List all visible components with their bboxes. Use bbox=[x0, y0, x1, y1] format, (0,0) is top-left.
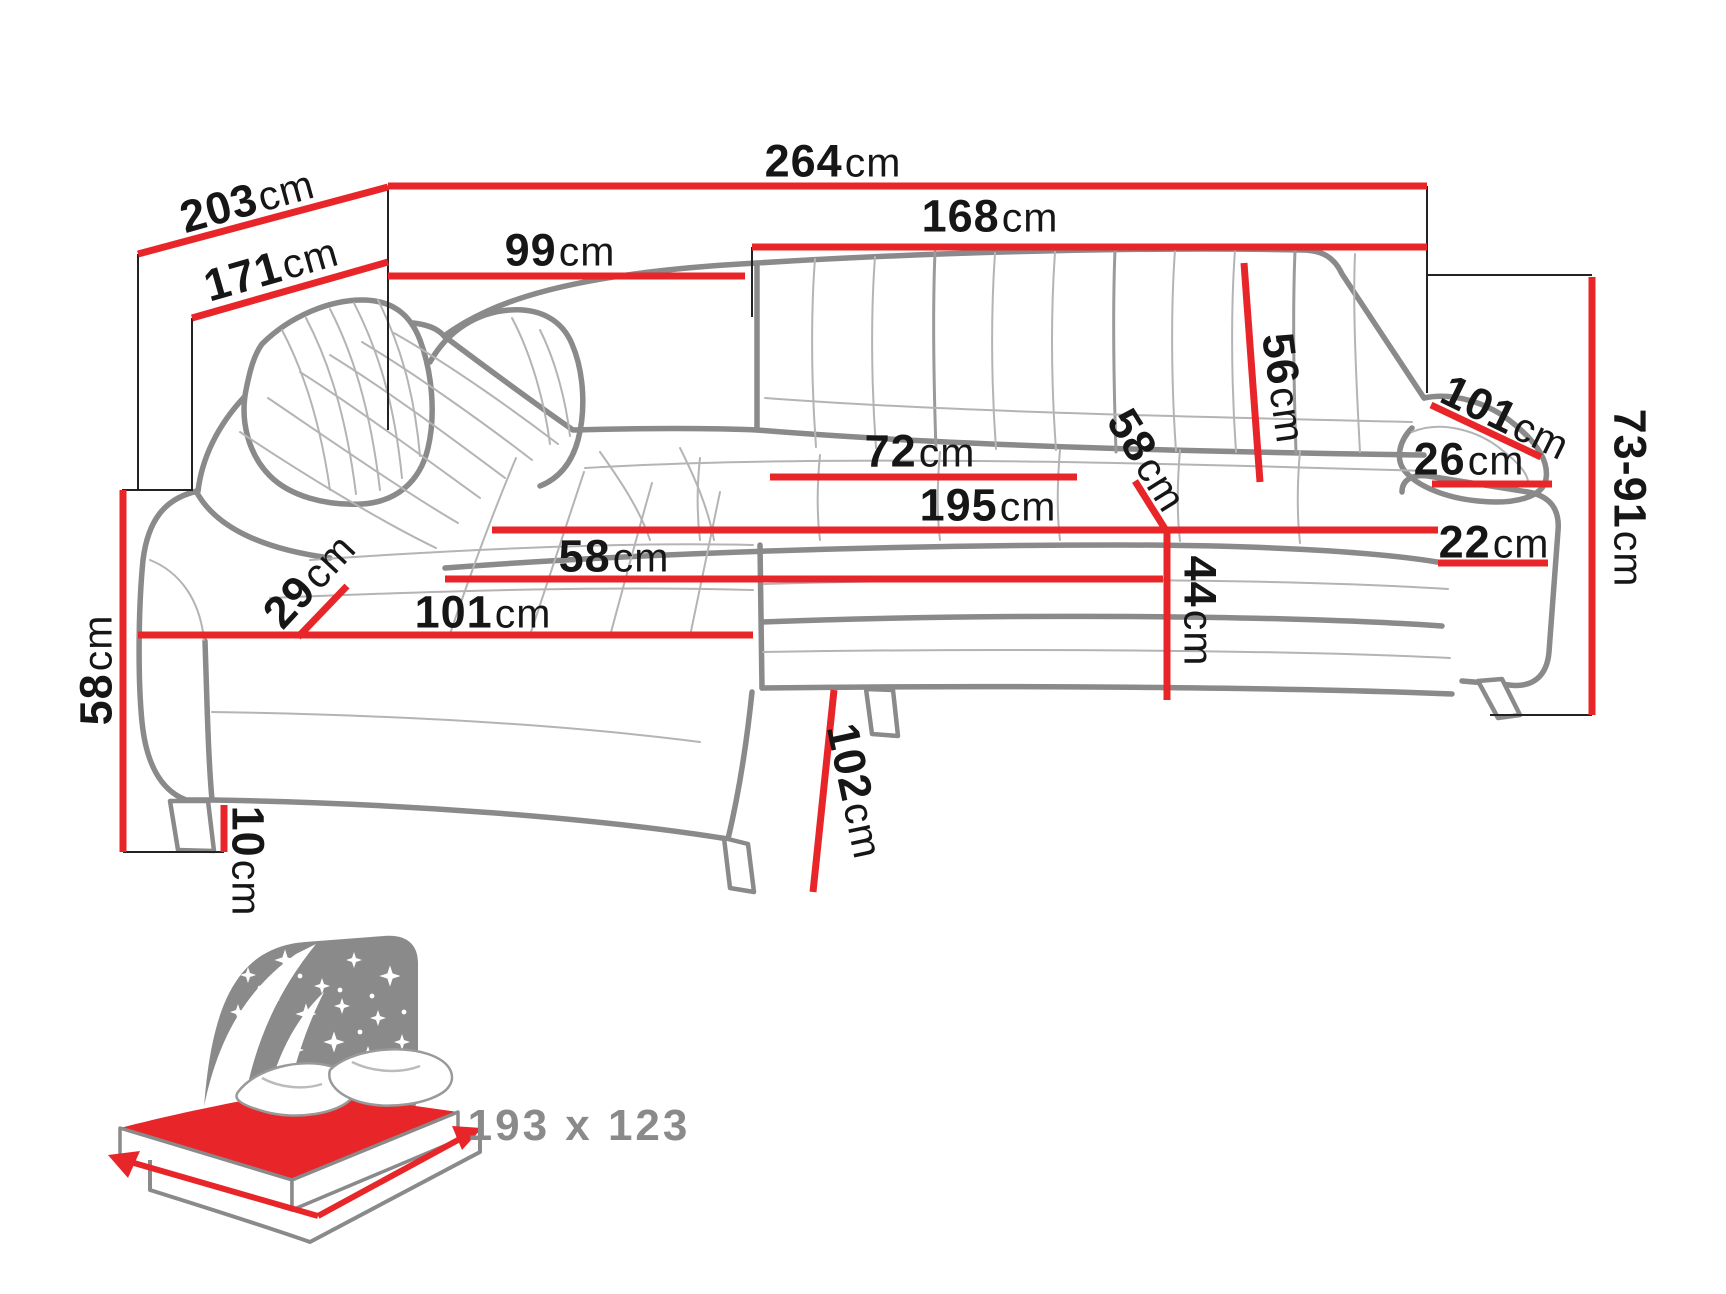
dim-armrest-top-label: 26cm bbox=[1414, 437, 1525, 482]
dim-backrest-width-label: 72cm bbox=[865, 429, 976, 474]
dim-total-width-label: 264cm bbox=[765, 139, 902, 184]
sofa-dimension-diagram: 264cm 203cm 171cm 99cm 168cm 56cm 101cm … bbox=[0, 0, 1726, 1294]
dim-chaise-length-label: 101cm bbox=[415, 590, 552, 635]
sleeping-area-label: 193 x 123 bbox=[468, 1104, 693, 1148]
dim-seat-height-label: 44cm bbox=[1178, 556, 1223, 667]
dim-armrest-front-label: 22cm bbox=[1439, 520, 1550, 565]
dim-side-height-label: 58cm bbox=[74, 615, 119, 726]
dim-leg-height-label: 10cm bbox=[226, 806, 271, 917]
dim-chaise-seat-label: 58cm bbox=[559, 534, 670, 579]
dim-back-left-label: 99cm bbox=[505, 228, 616, 273]
dim-seat-width-label: 195cm bbox=[920, 483, 1057, 528]
dim-height-range-label: 73-91cm bbox=[1608, 409, 1653, 588]
sleeping-function-icon bbox=[108, 936, 482, 1242]
dim-back-right-label: 168cm bbox=[922, 194, 1059, 239]
